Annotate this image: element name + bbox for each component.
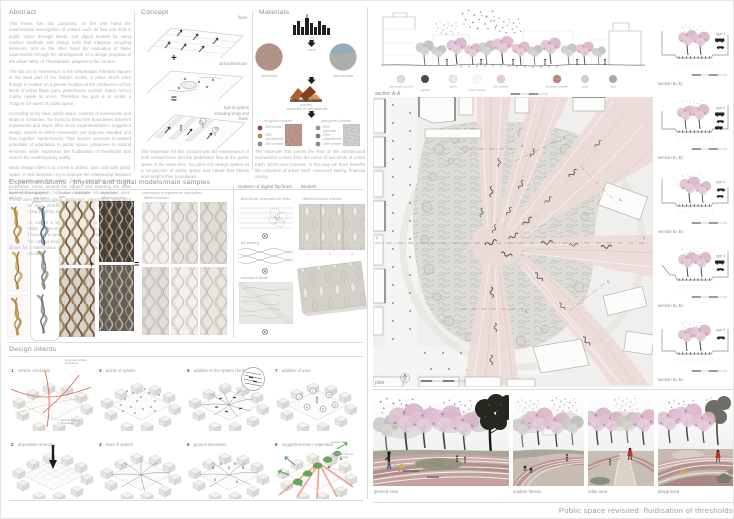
papercut-photo (99, 265, 134, 331)
concept-label-flows: flows (205, 15, 247, 20)
node-icon (261, 267, 269, 275)
view-caption: general view (374, 489, 398, 494)
models-photo (299, 204, 365, 250)
raw-form-label: ..raw form (7, 196, 31, 200)
recipe-red-i3: 25% cement (265, 142, 285, 146)
b-section-drawing: type 3 (658, 171, 733, 227)
recipe-grey-i3: 25% cement (323, 142, 343, 146)
b-section-label: section B₃-B₃′ (658, 229, 733, 234)
papercut-photo (99, 201, 134, 262)
divider (252, 11, 253, 171)
divider (9, 342, 363, 343)
intent-diagram-7: 1 2 3 4 5 6 (273, 365, 357, 431)
svg-text:red gravel concrete: red gravel concrete (546, 85, 569, 89)
abstract-paragraph: This thesis has two purposes: on the one… (9, 21, 131, 65)
divider (373, 389, 733, 390)
svg-text:type 4: type 4 (716, 254, 725, 258)
recipe-red-sample (285, 124, 302, 146)
b-section-label: section B₅-B₅′ (658, 377, 733, 382)
intent-diagram-6 (185, 439, 269, 499)
new-trees-note: trees with intense visual change (331, 453, 359, 460)
digital-step1-diagram (239, 205, 293, 231)
recipe-grey-i1: 50% concrete (323, 125, 343, 133)
intent-diagram-8 (273, 439, 357, 499)
digital-step3-terrain (239, 282, 293, 324)
view-general (373, 393, 509, 486)
svg-text:type 5: type 5 (716, 328, 725, 332)
plan-label: plan (375, 380, 385, 386)
b-section-label: section B₂-B₂′ (658, 155, 733, 160)
node-icon (261, 232, 269, 240)
view-playground (658, 393, 734, 486)
intent-diagram-3 (97, 365, 181, 431)
used-bricks-photo (254, 42, 284, 72)
process-label: process : production of melt materials (283, 103, 331, 111)
final-system-sample (200, 202, 227, 264)
recipe-grey-i2: 25% concrete mix (323, 133, 343, 141)
final-system-sample (171, 202, 198, 264)
svg-text:4: 4 (306, 405, 308, 409)
weave-sample-photo (59, 201, 95, 265)
plus-sign: + (89, 259, 94, 269)
design-intents-heading: Design intents (9, 346, 56, 353)
divider (373, 502, 733, 503)
view-relax (588, 393, 654, 486)
svg-text:asphalt: asphalt (421, 88, 430, 92)
svg-text:B₃: B₃ (619, 198, 623, 202)
b-section-card: type 2 section B₂-B₂′ (658, 97, 733, 169)
intent-diagram-5 (185, 365, 269, 431)
arrow-down-icon (307, 111, 316, 118)
model-number: 3 (351, 252, 353, 256)
svg-text:B₅: B₅ (525, 310, 529, 314)
divider (134, 11, 135, 171)
b-section-drawing: type 5 (658, 319, 733, 375)
combo-versions-label: ..different versions (142, 196, 182, 200)
abstract-paragraph: The site of my intervention is the Dimok… (9, 69, 131, 107)
concept-diagram-obstacles (141, 63, 249, 99)
concept-label-obstacles: obstacles/stops (201, 61, 247, 66)
final-system-sample (142, 202, 169, 264)
view-caption: relax area (588, 489, 607, 494)
arrow-down-icon (307, 40, 316, 47)
presentation-board: Abstract This thesis has two purposes: o… (0, 0, 734, 519)
svg-text:gravel: gravel (449, 85, 456, 89)
view-fitness (513, 393, 584, 486)
trash-label: trash (301, 48, 323, 52)
svg-text:6: 6 (334, 403, 336, 407)
papercuts-label: ..paper cuts (99, 191, 133, 195)
equals-sign: = (134, 259, 139, 269)
digital-step3-label: ..envelope of terrain (239, 276, 283, 280)
materials-caption: The materials that covers the floor of t… (255, 149, 365, 180)
spaghetti-label: ..experiments with spaghetti (7, 191, 67, 195)
divider (367, 7, 368, 499)
intent-diagram-2 (9, 439, 93, 499)
final-system-sample (142, 267, 169, 335)
svg-text:2: 2 (312, 389, 314, 393)
svg-text:trees: trees (610, 85, 616, 89)
intent-diagram-4 (97, 439, 181, 499)
recipe-red-i1: 50% bricks (265, 125, 285, 129)
digital-step2-diagram (239, 247, 293, 265)
b-section-label: section B₁-B₁′ (658, 81, 733, 86)
view-caption: playground (658, 489, 679, 494)
svg-text:3: 3 (328, 393, 330, 397)
materials-legend: grey gravel concrete asphalt gravel whit… (389, 75, 617, 92)
divider (233, 186, 234, 338)
models-photo-iso (297, 257, 367, 319)
versions-label: ..different versions (99, 196, 133, 200)
svg-text:grey gravel concrete: grey gravel concrete (389, 85, 413, 89)
recipe-grey-name: grey gravel concrete (313, 119, 359, 123)
b-section-label: section B₄-B₄′ (658, 303, 733, 308)
b-section-card: type 5 section B₅-B₅′ (658, 319, 733, 391)
svg-text:type 1: type 1 (716, 32, 725, 36)
svg-text:1: 1 (298, 395, 300, 399)
existed-trees-note: existed trees (331, 441, 359, 444)
melt-process-image (290, 86, 322, 102)
materials-heading: Materials (259, 9, 289, 16)
svg-text:white concrete: white concrete (469, 88, 486, 92)
divider (9, 356, 363, 357)
b-section-card: type 3 section B₃-B₃′ (658, 171, 733, 243)
abstract-heading: Abstract (9, 9, 131, 16)
spaghetti-photos-plastic (33, 204, 55, 336)
svg-text:type 2: type 2 (716, 106, 725, 110)
section-aa-drawing: grey gravel concrete asphalt gravel whit… (373, 5, 653, 97)
used-concrete-photo (328, 42, 358, 72)
svg-text:grass: grass (582, 85, 589, 89)
existed-circulation-note: existed vehicle circulation (61, 419, 89, 426)
abstract-paragraph: According to my view, public space consi… (9, 111, 131, 161)
weave-sample-photo (59, 268, 95, 337)
used-bricks-label: used bricks (251, 74, 287, 78)
concept-label-hybrid: hybrid system including strips and flows… (207, 105, 249, 122)
divider (9, 500, 363, 501)
concept-caption: The inspiration for this concept was the… (141, 149, 249, 180)
digital-step1-label: ..lines (flows) connected over limits (239, 197, 295, 201)
site-plan: A A B₁ B₂ B₃ B₄ B₅ plan (373, 97, 653, 387)
b-section-card: type 1 section B₁-B₁′ (658, 23, 733, 95)
svg-text:type 3: type 3 (716, 180, 725, 184)
final-system-sample (171, 267, 198, 335)
view-caption: outdoor fitness (513, 489, 541, 494)
svg-text:pink concrete: pink concrete (493, 85, 509, 89)
b-section-card: type 4 section B₄-B₄′ (658, 245, 733, 317)
poster-title: Public space revisited: fluidisation of … (433, 506, 733, 515)
arrow-down-icon (307, 77, 316, 84)
weaving-label: ..system - weaving of lines (59, 191, 97, 199)
recipe-red-name: red gravel concrete (255, 119, 301, 123)
recipe-grey-sample (343, 124, 360, 146)
concept-heading: Concept (141, 9, 168, 16)
b-section-drawing: type 1 (658, 23, 733, 79)
used-concrete-label: used concrete (325, 74, 361, 78)
digital-heading: System of digital flip lines (238, 185, 292, 190)
concept-diagram-flows (141, 18, 249, 58)
spaghetti-photos-raw (7, 203, 28, 337)
city-icon (291, 14, 333, 35)
model-number: 1 (307, 252, 309, 256)
digital-step2-label: ..line weaving (239, 241, 279, 245)
experiments-heading: Experimentations - physical and digital … (9, 179, 210, 186)
final-system-sample (200, 267, 227, 335)
proposed-circulation-note: proposed vehicle circulation (65, 359, 91, 366)
models-sub-label: ..different versions of terrain (301, 197, 361, 201)
recipe-red-i2: 25% concrete mix (265, 133, 285, 141)
models-heading: Models (301, 185, 316, 190)
svg-text:B₄: B₄ (607, 280, 611, 284)
svg-text:5: 5 (322, 407, 324, 411)
model-number: 2 (329, 252, 331, 256)
b-section-drawing: type 4 (658, 245, 733, 301)
b-section-drawing: type 2 (658, 97, 733, 153)
node-icon (261, 328, 269, 336)
combo-label: combination of experiments: final system (142, 191, 212, 195)
